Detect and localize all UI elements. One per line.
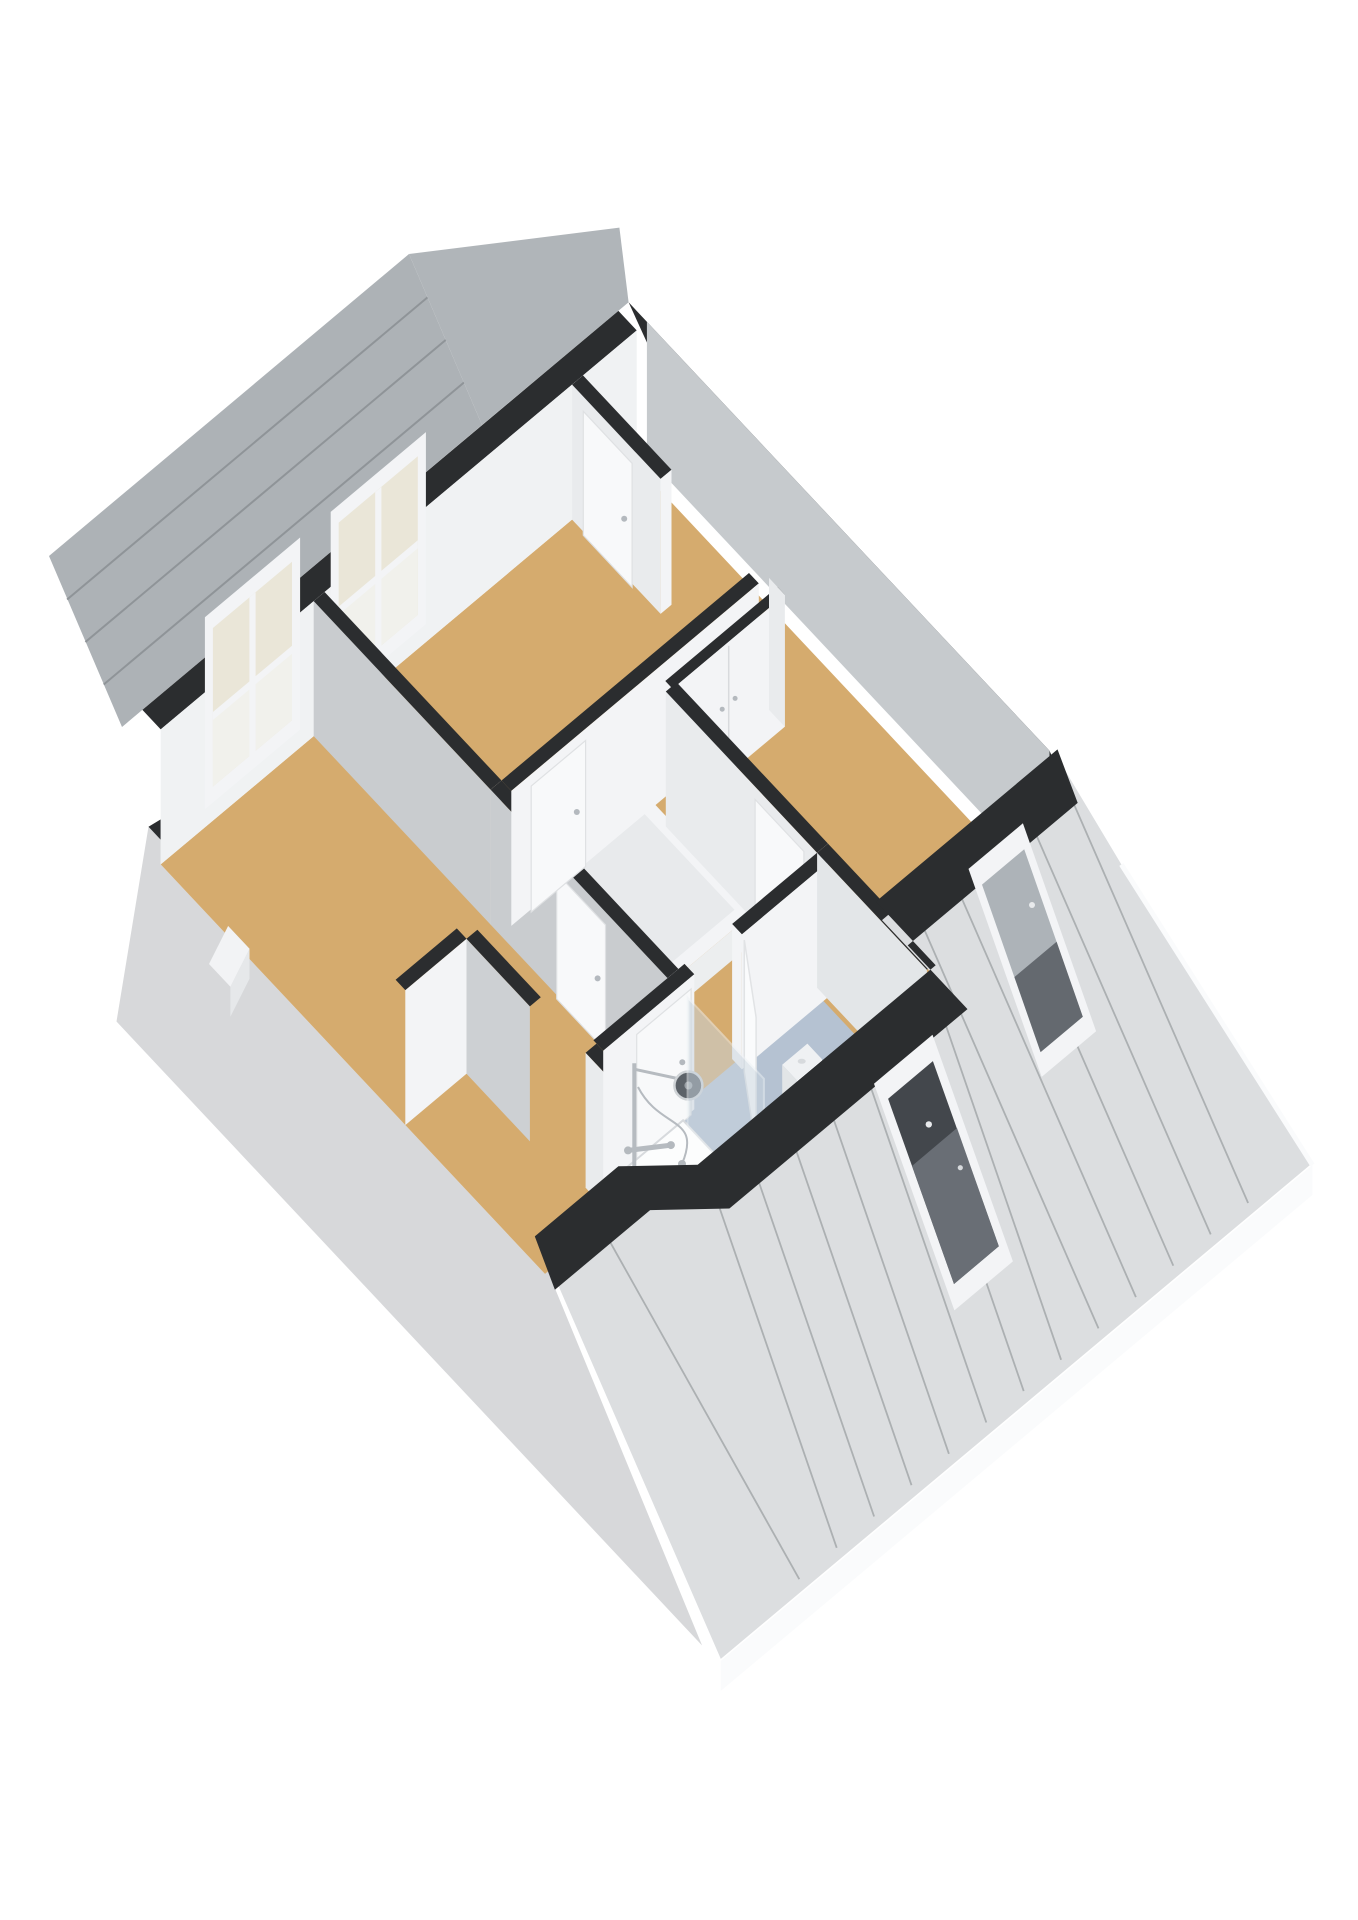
closet-handle-left	[720, 707, 725, 712]
door-handle	[595, 975, 601, 981]
washbasin-drain	[958, 1165, 963, 1170]
closet-handle-right	[733, 696, 738, 701]
wall-end-face	[661, 470, 672, 614]
floorplan-canvas	[0, 0, 1358, 1920]
floorplan-3d-view	[0, 0, 1358, 1920]
door-handle	[574, 809, 580, 815]
door-handle	[679, 1059, 685, 1065]
window-mullion	[375, 487, 381, 656]
roof-window-latch	[1029, 902, 1035, 908]
door-handle	[621, 516, 627, 522]
toilet-flush-button	[798, 1059, 806, 1064]
washbasin-faucet	[926, 1121, 932, 1127]
valve-knob-left	[624, 1146, 632, 1154]
window-mullion	[249, 592, 255, 761]
valve-knob-right	[667, 1141, 675, 1149]
closet-return-face	[769, 578, 785, 727]
